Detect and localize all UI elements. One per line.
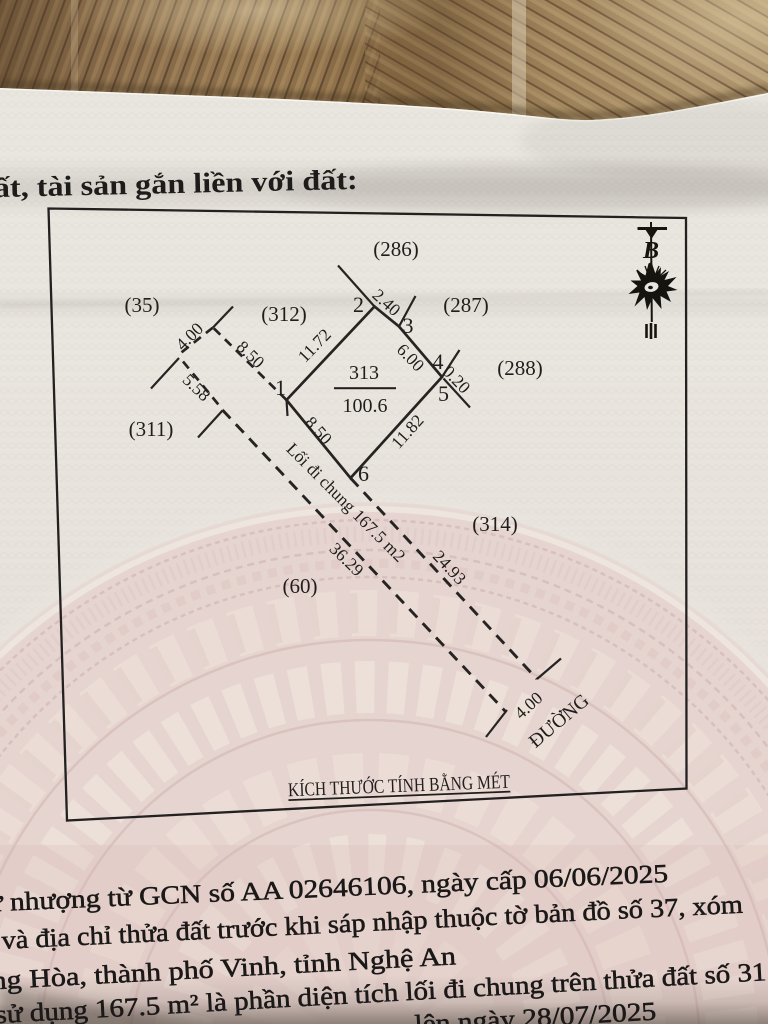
- svg-text:B: B: [642, 238, 659, 264]
- svg-text:1: 1: [275, 375, 286, 400]
- svg-text:(60): (60): [283, 574, 318, 598]
- svg-text:313: 313: [349, 362, 379, 384]
- svg-text:(286): (286): [373, 237, 419, 261]
- svg-text:100.6: 100.6: [343, 395, 388, 417]
- svg-text:(287): (287): [443, 293, 489, 317]
- svg-text:6: 6: [358, 461, 369, 486]
- svg-text:(312): (312): [261, 302, 307, 326]
- svg-text:2: 2: [353, 292, 364, 317]
- svg-text:(35): (35): [125, 293, 160, 317]
- svg-text:(311): (311): [129, 417, 174, 441]
- svg-text:4: 4: [433, 349, 444, 374]
- svg-text:3: 3: [403, 313, 414, 338]
- svg-text:5: 5: [438, 381, 449, 406]
- svg-text:(288): (288): [497, 356, 543, 380]
- svg-text:(314): (314): [472, 512, 518, 536]
